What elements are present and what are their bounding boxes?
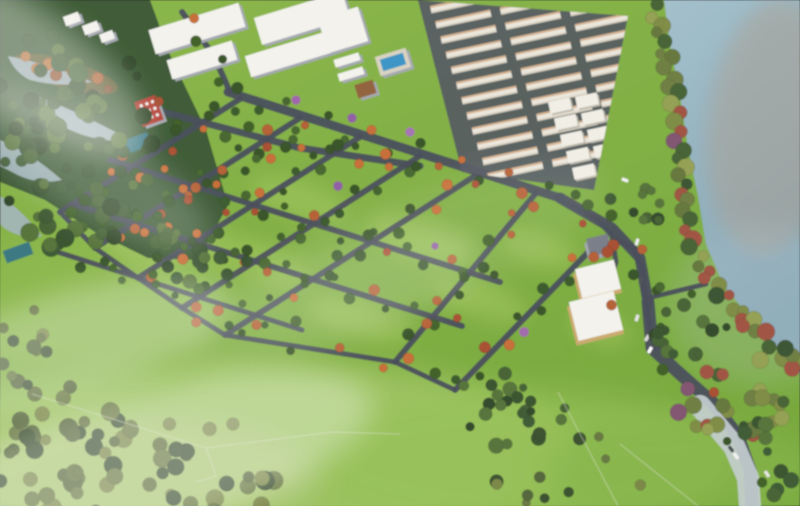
light-grade <box>0 0 800 506</box>
scene <box>0 0 800 506</box>
masterplan-svg <box>0 0 800 506</box>
masterplan-render <box>0 0 800 506</box>
